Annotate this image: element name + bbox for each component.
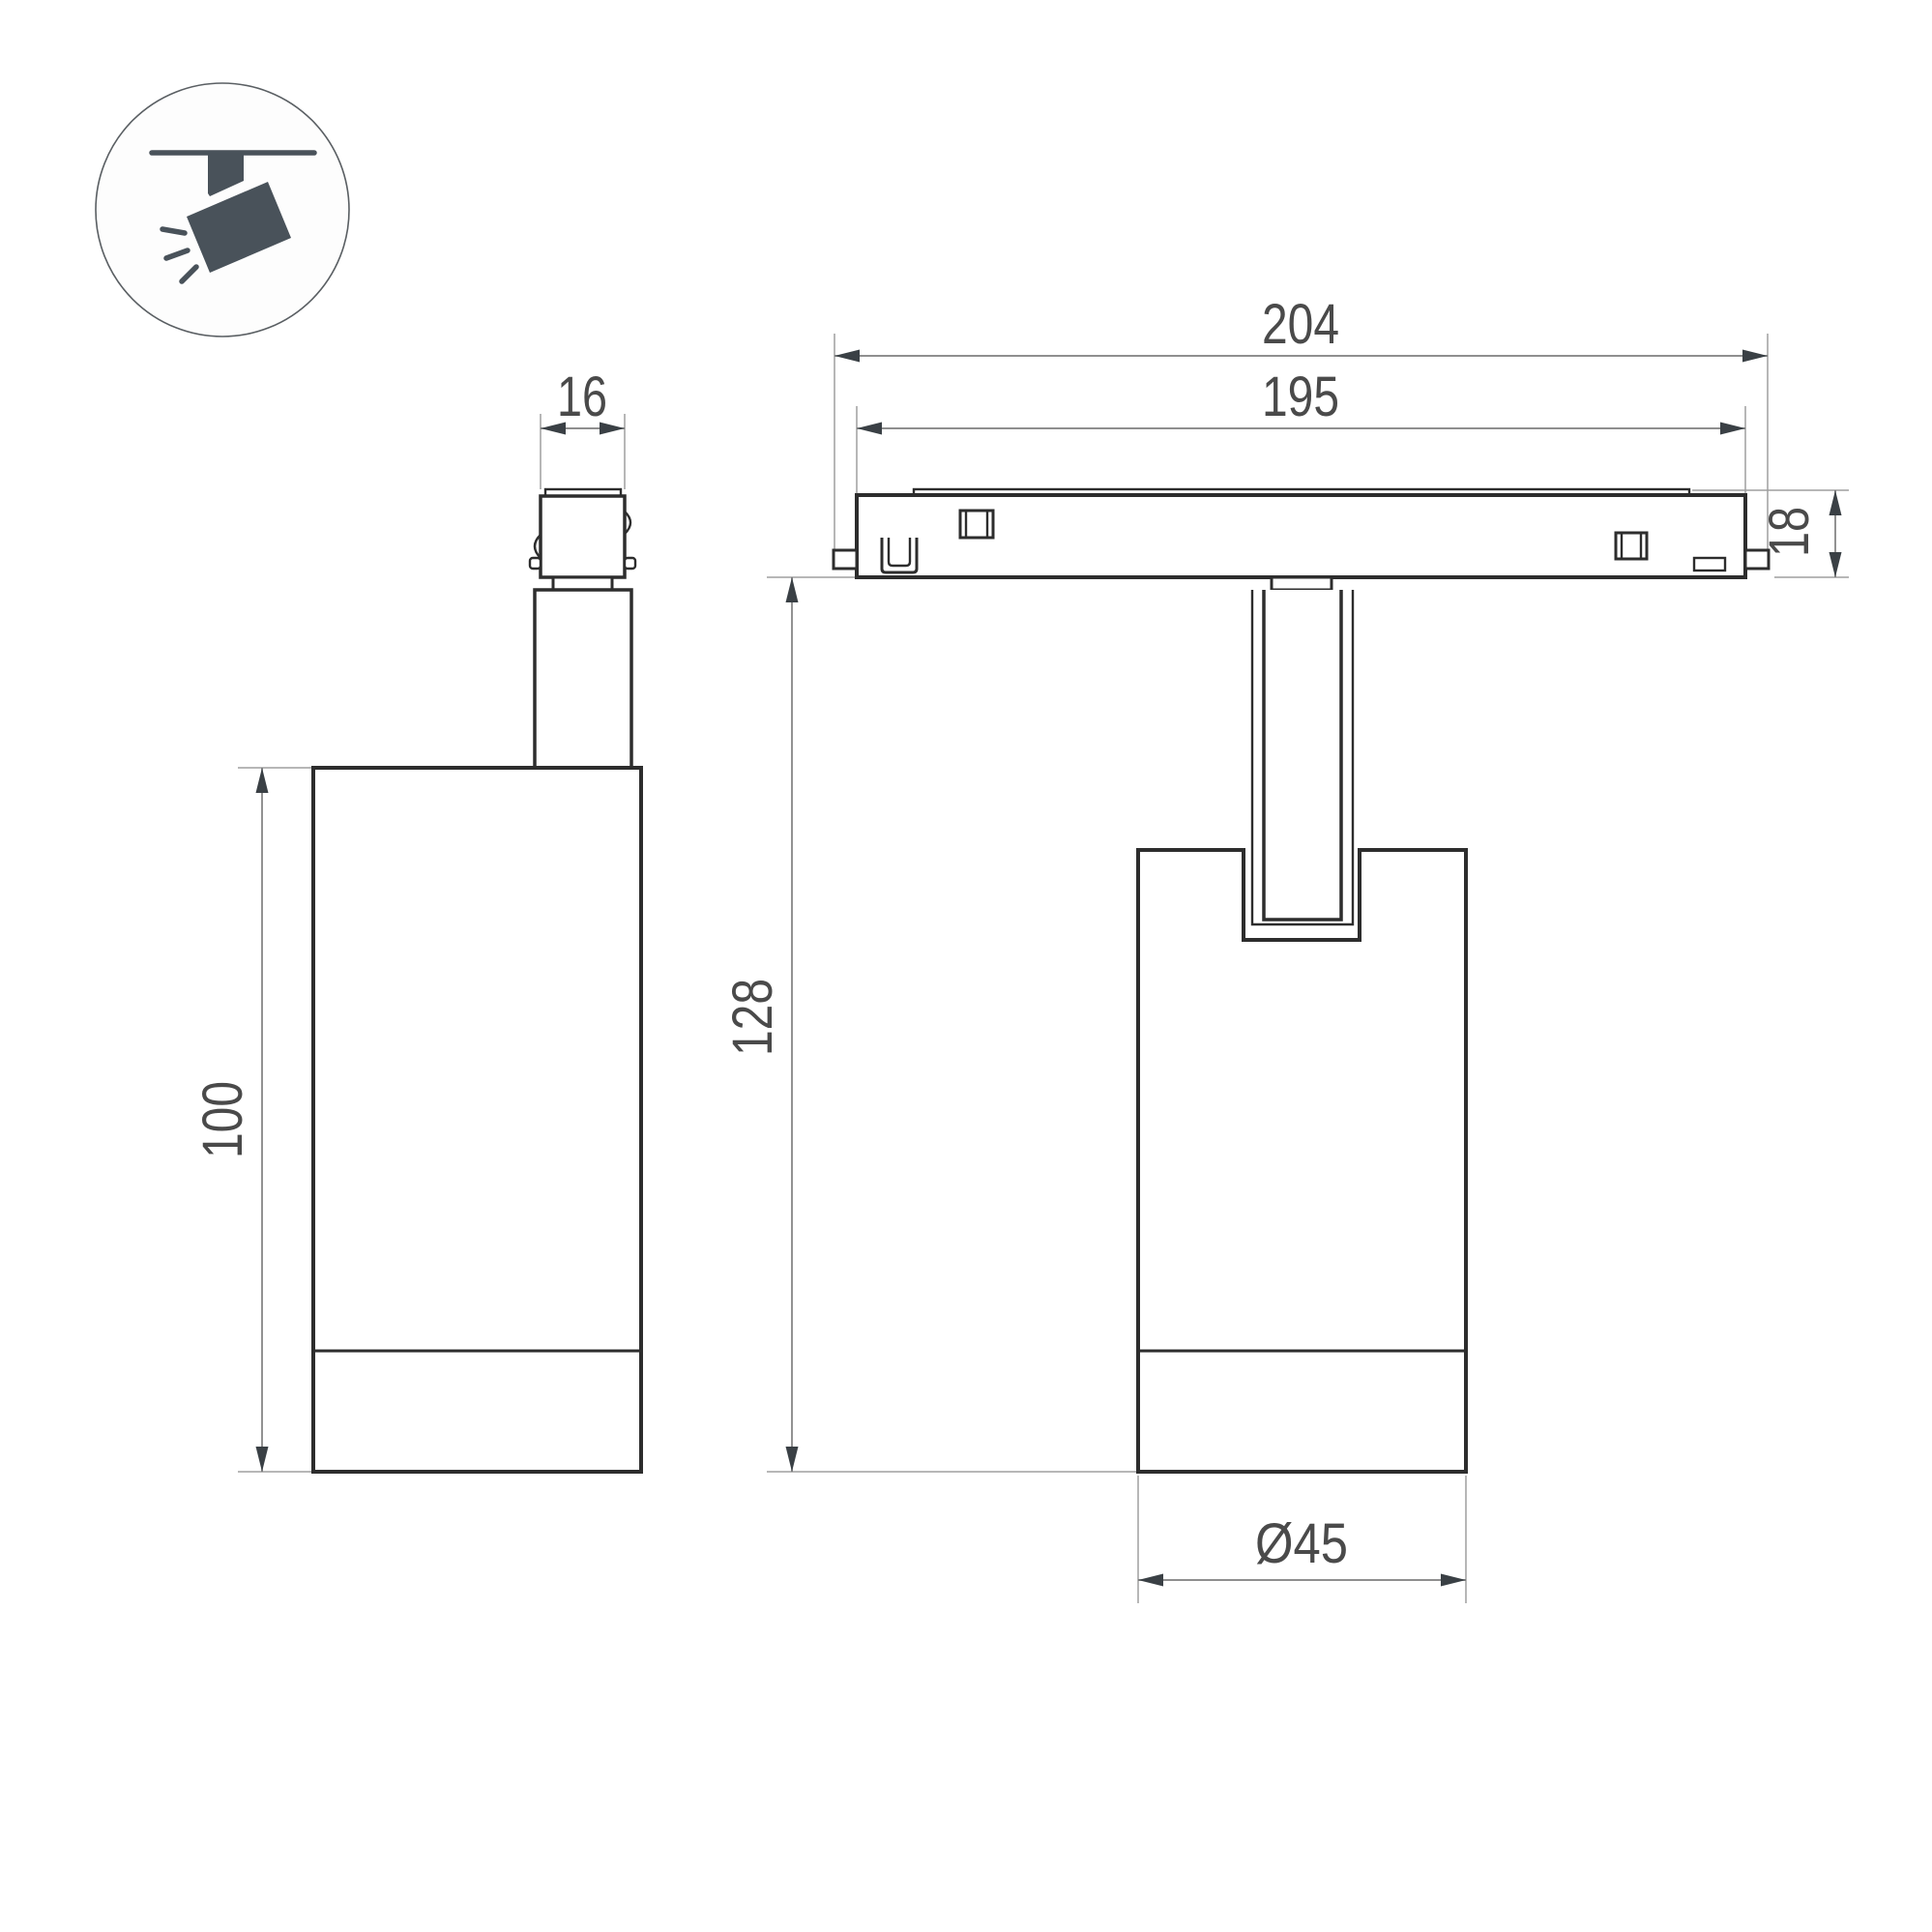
arrowhead-down	[1830, 552, 1842, 577]
dim-label-128: 128	[721, 979, 784, 1056]
lamp-body-front	[1138, 850, 1466, 1472]
stem-inner	[1264, 590, 1341, 920]
lamp-body-side	[313, 768, 641, 1472]
arrowhead-left	[834, 350, 860, 363]
arrowhead-down	[256, 1447, 269, 1472]
dim-track-inner-length: 195	[857, 366, 1745, 495]
contact-tab-left	[530, 558, 541, 569]
track-adapter-cross-section	[530, 489, 635, 590]
arrowhead-down	[786, 1447, 799, 1472]
stem-side	[535, 590, 631, 768]
arrowhead-right	[1742, 350, 1768, 363]
dimension-drawing: 16 100	[0, 0, 1932, 1932]
rail-end-tab-left	[834, 550, 857, 569]
stem-front	[1252, 577, 1353, 924]
arrowhead-left	[857, 423, 882, 435]
dim-label-16: 16	[557, 366, 607, 428]
side-view: 16 100	[191, 366, 641, 1472]
arrowhead-up	[1830, 490, 1842, 515]
track-rail	[834, 489, 1769, 577]
arrowhead-up	[786, 577, 799, 602]
dim-overall-height: 128	[721, 577, 799, 1472]
dim-label-195: 195	[1262, 366, 1339, 428]
arrowhead-left	[1138, 1574, 1163, 1587]
arrowhead-right	[1720, 423, 1745, 435]
body-outline	[1138, 850, 1466, 1472]
slot-right	[1694, 558, 1725, 571]
dim-body-diameter: Ø45	[1138, 1476, 1466, 1603]
dim-body-height: 100	[191, 768, 269, 1472]
body-outline	[313, 768, 641, 1472]
front-view: 204 195	[721, 293, 1849, 1603]
contact-tab-right	[625, 558, 635, 569]
product-icon	[96, 83, 349, 337]
dim-label-diameter: Ø45	[1255, 1512, 1348, 1575]
adapter-body	[541, 496, 625, 577]
dim-label-18: 18	[1758, 507, 1821, 557]
dim-label-100: 100	[191, 1081, 254, 1158]
adapter-neck	[553, 577, 612, 590]
dim-track-height: 18	[1758, 490, 1842, 577]
stem-collar	[1272, 577, 1332, 590]
arrowhead-right	[1441, 1574, 1466, 1587]
dim-adapter-width: 16	[541, 366, 625, 489]
drawing-page: 16 100	[0, 0, 1932, 1932]
arrowhead-up	[256, 768, 269, 793]
dim-label-204: 204	[1262, 293, 1339, 356]
